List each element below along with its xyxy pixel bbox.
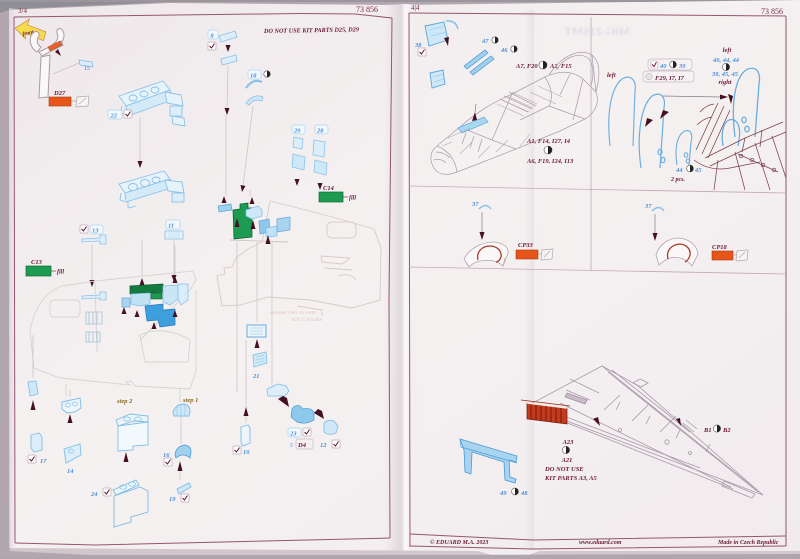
svg-text:A1, F14, I27, I4: A1, F14, I27, I4	[526, 138, 571, 145]
svg-text:37: 37	[471, 201, 479, 208]
svg-text:21: 21	[252, 373, 260, 380]
svg-text:45: 45	[694, 167, 702, 174]
svg-text:DO NOT USE: DO NOT USE	[544, 466, 584, 473]
svg-text:left: left	[607, 72, 616, 79]
svg-text:37: 37	[644, 203, 652, 210]
svg-text:10: 10	[243, 449, 250, 456]
svg-text:© EDUARD M.A. 2023: © EDUARD M.A. 2023	[430, 539, 488, 546]
svg-text:47: 47	[481, 38, 489, 45]
svg-text:eduard 73 856: eduard 73 856	[291, 318, 322, 323]
svg-text:F29, I7, I7: F29, I7, I7	[655, 75, 685, 82]
svg-text:40: 40	[659, 63, 667, 70]
svg-text:MiG-21 SMT interior: MiG-21 SMT interior	[269, 311, 316, 316]
svg-text:step 2: step 2	[116, 398, 133, 405]
svg-text:13: 13	[92, 228, 99, 235]
svg-text:fill: fill	[57, 270, 64, 276]
svg-text:fill: fill	[349, 196, 356, 202]
svg-text:A23: A23	[562, 439, 575, 446]
svg-text:Made in Czech Republic: Made in Czech Republic	[717, 540, 779, 546]
svg-text:4|4: 4|4	[411, 4, 420, 12]
svg-text:A7, F20: A7, F20	[515, 63, 538, 70]
svg-text:46: 46	[500, 47, 508, 54]
svg-text:11: 11	[168, 223, 174, 230]
svg-text:A6, F19, I24, I13: A6, F19, I24, I13	[526, 158, 574, 165]
svg-text:73 856: 73 856	[761, 7, 783, 16]
svg-text:right: right	[718, 79, 731, 86]
svg-text:step 1: step 1	[182, 397, 198, 404]
svg-text:39: 39	[678, 63, 686, 70]
svg-text:73 856: 73 856	[356, 5, 378, 14]
svg-text:2 pcs.: 2 pcs.	[670, 177, 685, 183]
svg-text:14: 14	[67, 468, 74, 475]
svg-text:15: 15	[84, 66, 90, 72]
svg-text:B1: B1	[703, 427, 712, 434]
svg-text:CP18: CP18	[712, 244, 728, 251]
svg-text:5: 5	[290, 443, 293, 449]
svg-text:B2: B2	[722, 427, 731, 434]
svg-text:17: 17	[40, 458, 47, 465]
svg-text:MiG-21SMT: MiG-21SMT	[564, 24, 630, 38]
svg-text:39, 45, 45: 39, 45, 45	[711, 71, 739, 78]
svg-text:A21: A21	[561, 457, 573, 464]
svg-text:20: 20	[293, 128, 301, 135]
svg-text:18: 18	[250, 73, 257, 80]
svg-text:22: 22	[110, 113, 118, 120]
svg-text:12: 12	[320, 442, 327, 449]
svg-text:left: left	[723, 47, 732, 54]
svg-text:19: 19	[169, 496, 176, 503]
svg-text:40, 44, 44: 40, 44, 44	[712, 57, 740, 64]
svg-text:D4: D4	[297, 442, 307, 449]
svg-text:48: 48	[520, 490, 528, 497]
svg-text:www.eduard.com: www.eduard.com	[579, 540, 622, 546]
svg-text:49: 49	[499, 490, 507, 497]
svg-text:D27: D27	[53, 90, 66, 97]
svg-text:C14: C14	[323, 185, 335, 192]
svg-text:24: 24	[90, 491, 98, 498]
svg-text:CP33: CP33	[518, 242, 534, 249]
svg-text:28: 28	[316, 128, 324, 135]
svg-text:C13: C13	[31, 259, 43, 266]
svg-text:23: 23	[289, 431, 297, 438]
svg-text:3/4: 3/4	[18, 7, 27, 15]
svg-text:44: 44	[675, 167, 683, 174]
svg-text:KIT PARTS A3, A5: KIT PARTS A3, A5	[544, 475, 598, 482]
